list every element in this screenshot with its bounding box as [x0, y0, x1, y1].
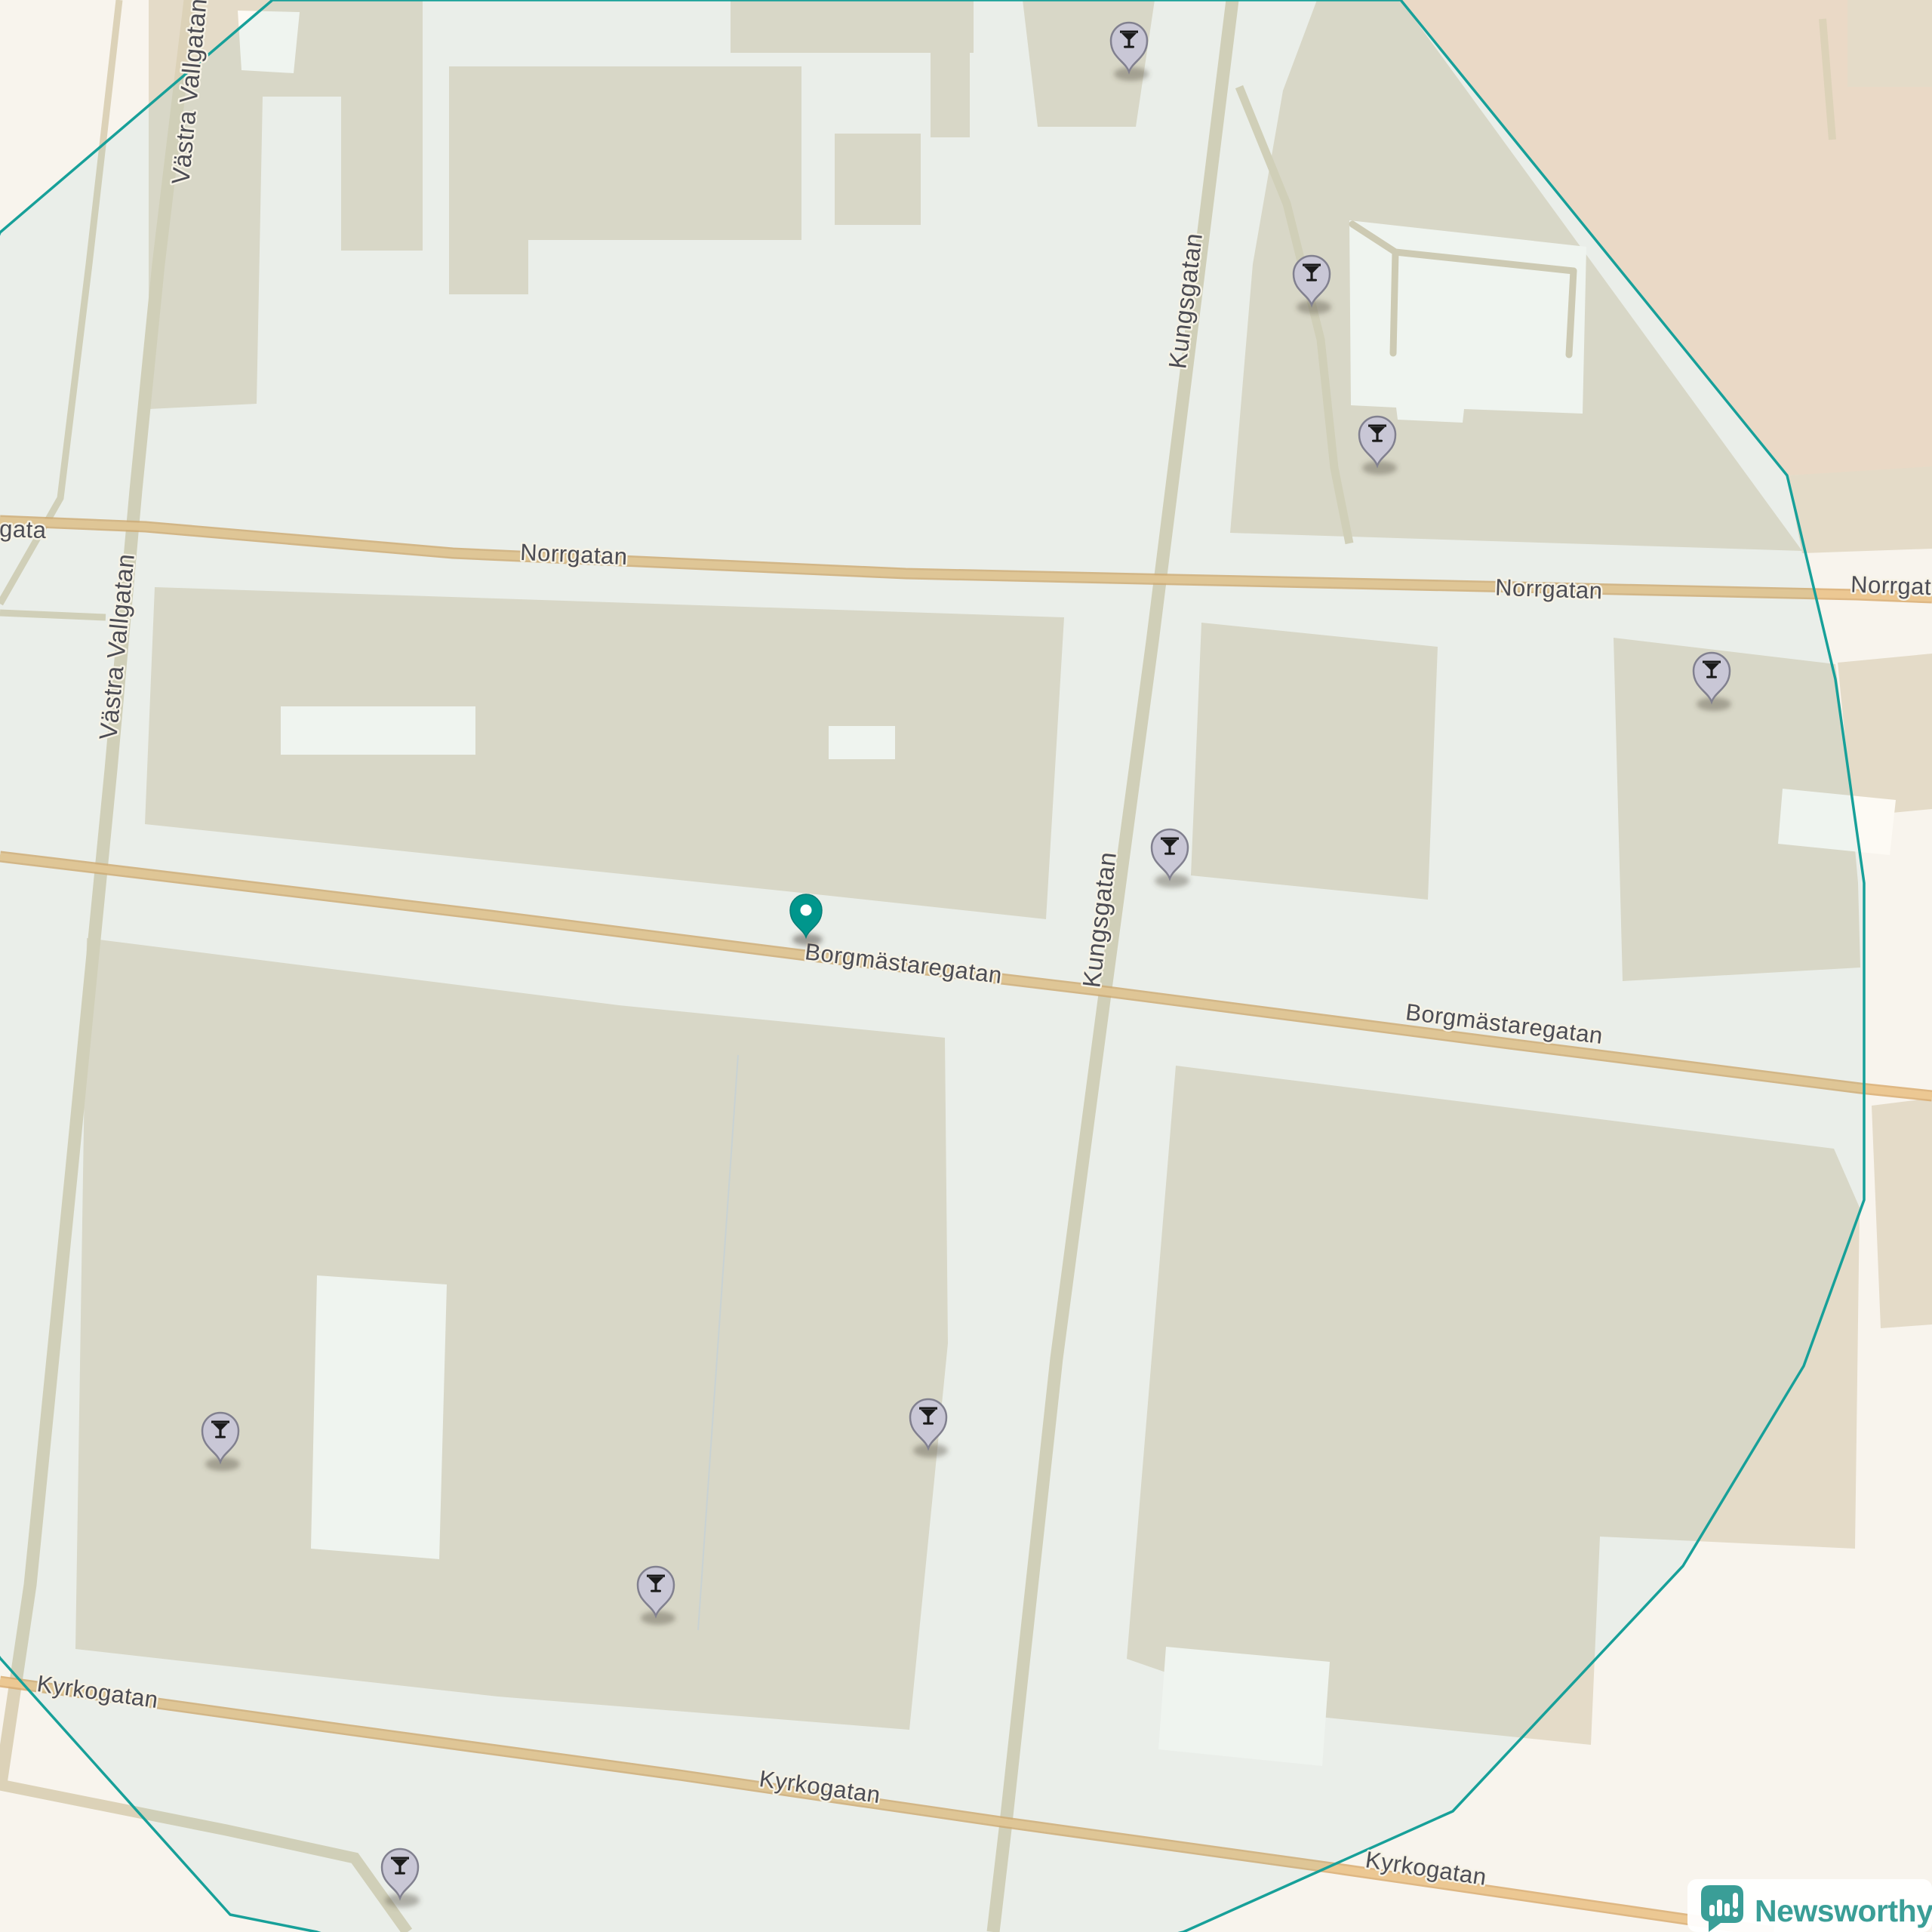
bar-marker[interactable]	[202, 1413, 240, 1471]
newsworthy-watermark: Newsworthy	[1687, 1879, 1932, 1932]
selected-location-pin[interactable]	[790, 894, 823, 946]
bar-marker[interactable]	[638, 1567, 675, 1625]
bar-marker[interactable]	[910, 1399, 948, 1457]
street-label-norrgatan-1: Norrgatan	[520, 539, 629, 570]
bar-marker[interactable]	[1359, 417, 1397, 475]
selected-marker-layer	[790, 894, 823, 946]
newsworthy-logo-text: Newsworthy	[1755, 1894, 1932, 1928]
street-label-norrgatan-2: Norrgatan	[1495, 574, 1603, 605]
map-canvas[interactable]: gata Västra Vallgatan Västra Vallgatan K…	[0, 0, 1932, 1932]
bar-marker[interactable]	[382, 1849, 420, 1907]
bar-marker[interactable]	[1152, 829, 1189, 888]
street-label-norrgatan-3: Norrgatan	[1850, 571, 1932, 601]
street-label-gata: gata	[0, 515, 47, 543]
bar-marker[interactable]	[1694, 653, 1731, 711]
bar-marker[interactable]	[1294, 256, 1331, 314]
bar-marker[interactable]	[1111, 23, 1149, 81]
